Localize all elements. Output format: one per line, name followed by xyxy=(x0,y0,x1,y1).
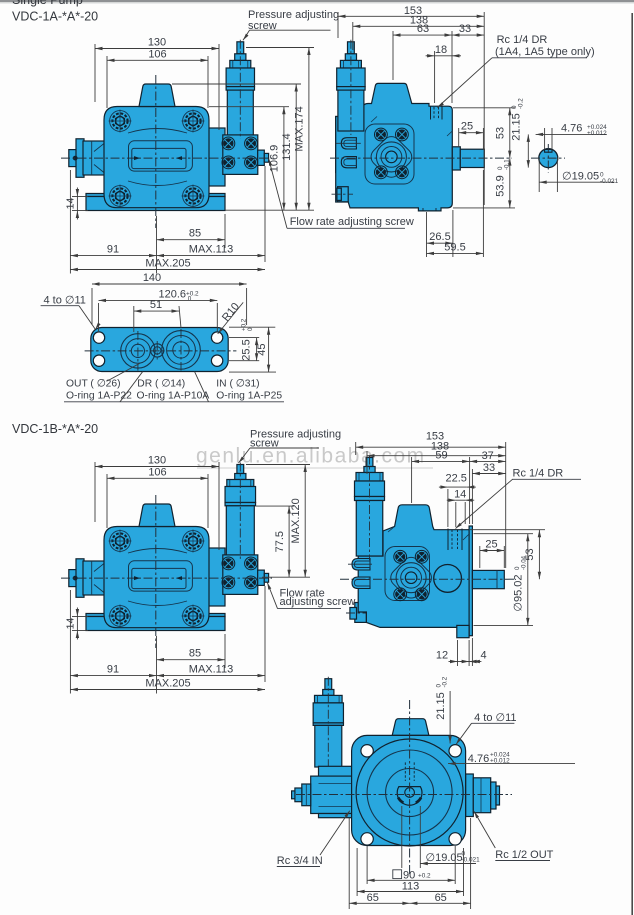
svg-text:VDC-1B-*A*-20: VDC-1B-*A*-20 xyxy=(12,422,98,436)
svg-text:Rc 1/4 DR: Rc 1/4 DR xyxy=(513,468,564,480)
svg-text:4 to ∅11: 4 to ∅11 xyxy=(44,294,86,306)
svg-text:Flow rate adjusting screw: Flow rate adjusting screw xyxy=(290,216,414,228)
svg-text:53.9: 53.9 xyxy=(495,175,507,196)
svg-text:130: 130 xyxy=(148,455,166,467)
svg-text:-0.2: -0.2 xyxy=(517,98,524,109)
svg-text:113: 113 xyxy=(402,880,420,892)
svg-text:91: 91 xyxy=(107,664,119,676)
svg-text:131.4: 131.4 xyxy=(281,133,293,161)
svg-text:-0.04: -0.04 xyxy=(520,555,527,570)
svg-text:65: 65 xyxy=(367,892,379,904)
svg-text:O-ring 1A-P25: O-ring 1A-P25 xyxy=(216,390,282,401)
svg-text:Rc 1/4 DR: Rc 1/4 DR xyxy=(497,34,548,46)
svg-text:-0.1: -0.1 xyxy=(503,159,510,170)
svg-text:∅19.05: ∅19.05 xyxy=(426,852,463,864)
svg-text:59: 59 xyxy=(435,449,447,461)
svg-text:106: 106 xyxy=(148,48,166,60)
svg-text:Single Pump: Single Pump xyxy=(12,0,83,7)
svg-text:VDC-1A-*A*-20: VDC-1A-*A*-20 xyxy=(12,10,98,24)
svg-text:Rc 3/4 IN: Rc 3/4 IN xyxy=(277,855,323,867)
svg-text:MAX.113: MAX.113 xyxy=(189,664,233,676)
svg-text:-0.2: -0.2 xyxy=(442,676,449,687)
svg-text:25.5: 25.5 xyxy=(241,339,253,360)
svg-text:OUT ( ∅26): OUT ( ∅26) xyxy=(66,379,121,390)
svg-text:0: 0 xyxy=(247,327,254,331)
svg-text:14: 14 xyxy=(454,489,466,501)
svg-text:Rc 1/2 OUT: Rc 1/2 OUT xyxy=(495,849,553,861)
svg-text:106: 106 xyxy=(148,466,166,478)
svg-text:53: 53 xyxy=(495,127,507,139)
svg-text:25: 25 xyxy=(485,539,497,551)
svg-text:33: 33 xyxy=(459,23,471,35)
svg-text:4: 4 xyxy=(480,650,486,662)
svg-text:63: 63 xyxy=(417,23,429,35)
svg-text:59.5: 59.5 xyxy=(444,241,465,253)
svg-text:18: 18 xyxy=(435,44,447,56)
svg-text:+0.012: +0.012 xyxy=(490,758,510,765)
svg-text:DR ( ∅14): DR ( ∅14) xyxy=(137,379,185,390)
svg-text:+0.2: +0.2 xyxy=(418,873,431,880)
svg-text:4 to ∅11: 4 to ∅11 xyxy=(474,712,516,724)
svg-text:65: 65 xyxy=(435,892,447,904)
svg-text:22.5: 22.5 xyxy=(445,473,466,485)
svg-text:MAX.120: MAX.120 xyxy=(290,498,302,543)
svg-text:45: 45 xyxy=(256,344,268,356)
svg-text:21.15: 21.15 xyxy=(511,113,523,141)
svg-text:∅95.02: ∅95.02 xyxy=(513,574,525,611)
svg-text:+0.012: +0.012 xyxy=(587,130,607,137)
svg-text:-0.021: -0.021 xyxy=(600,178,619,185)
svg-text:85: 85 xyxy=(189,648,201,660)
svg-text:106.9: 106.9 xyxy=(269,145,281,173)
svg-text:adjusting screw: adjusting screw xyxy=(280,596,356,608)
svg-text:MAX.113: MAX.113 xyxy=(189,244,233,256)
svg-text:MAX.174: MAX.174 xyxy=(294,106,306,151)
svg-text:∅19.05: ∅19.05 xyxy=(562,170,599,182)
svg-text:4.76: 4.76 xyxy=(468,753,489,765)
svg-text:21.15: 21.15 xyxy=(435,692,447,720)
svg-text:77.5: 77.5 xyxy=(274,531,286,552)
svg-text:120.6: 120.6 xyxy=(159,289,187,301)
svg-text:MAX.205: MAX.205 xyxy=(145,678,190,690)
svg-text:130: 130 xyxy=(148,37,166,49)
svg-text:140: 140 xyxy=(143,272,161,284)
svg-text:4.76: 4.76 xyxy=(561,123,582,135)
svg-text:37: 37 xyxy=(482,450,494,462)
svg-text:MAX.205: MAX.205 xyxy=(145,258,190,270)
svg-text:85: 85 xyxy=(189,228,201,240)
svg-text:33: 33 xyxy=(483,462,495,474)
svg-text:(1A4, 1A5 type only): (1A4, 1A5 type only) xyxy=(495,46,595,58)
svg-text:IN ( ∅31): IN ( ∅31) xyxy=(216,379,259,390)
svg-text:91: 91 xyxy=(107,244,119,256)
svg-text:O-ring 1A-P10A: O-ring 1A-P10A xyxy=(137,390,210,401)
svg-text:25: 25 xyxy=(461,121,473,133)
svg-text:12: 12 xyxy=(436,650,448,662)
svg-text:51: 51 xyxy=(150,299,162,311)
svg-text:0: 0 xyxy=(186,296,192,303)
